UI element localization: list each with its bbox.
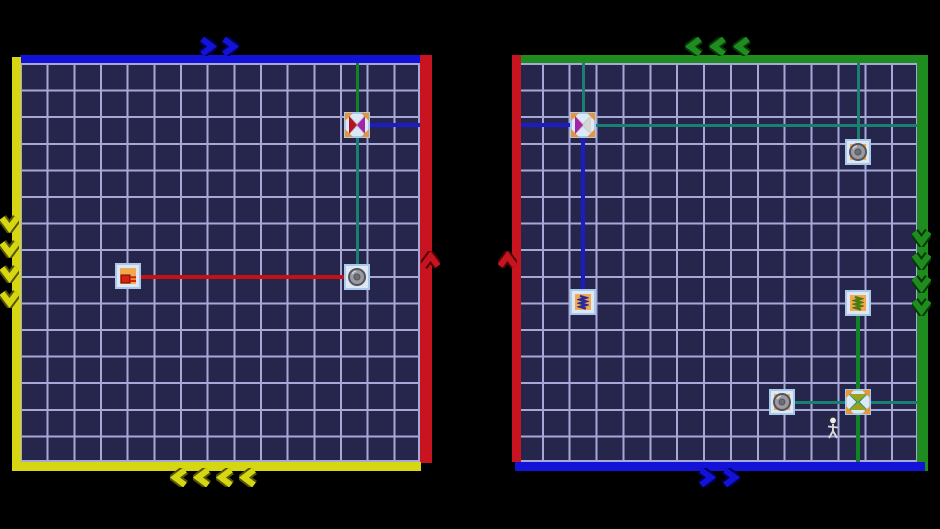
- right-round-spool-top-round-icon: [848, 142, 868, 162]
- chevron-left-icon: [193, 468, 213, 487]
- chevron-down-icon: [0, 288, 19, 308]
- right-round-spool-bottom-round-icon: [772, 392, 792, 412]
- chevron-down-icon: [0, 238, 19, 258]
- chevron-up-icon: [498, 251, 517, 271]
- left-red-plug-plug-icon: [120, 270, 137, 282]
- chevron-down-icon: [912, 227, 931, 247]
- right-green-coil-coil-icon: [852, 295, 864, 312]
- right-cross-spool-top-cross-icon: [570, 112, 596, 138]
- left-cross-spool-cross-icon: [344, 112, 370, 138]
- chevron-up-icon: [421, 251, 440, 271]
- chevron-down-icon: [912, 273, 931, 293]
- chevron-right-icon: [219, 37, 239, 56]
- wire-green: [856, 303, 860, 462]
- chevron-left-icon: [216, 468, 236, 487]
- left-round-spool-round-icon: [347, 267, 367, 287]
- chevron-left-icon: [170, 468, 190, 487]
- chevron-down-icon: [912, 250, 931, 270]
- chevron-right-icon: [696, 468, 716, 487]
- right-board-border-top-green: [512, 55, 925, 63]
- game-stage: [0, 0, 940, 529]
- chevron-left-icon: [685, 37, 705, 56]
- wire-blue: [581, 125, 585, 302]
- wire-red: [128, 275, 357, 279]
- chevron-right-icon: [197, 37, 217, 56]
- wire-teal: [356, 125, 359, 277]
- chevron-down-icon: [0, 213, 19, 233]
- chevron-left-icon: [239, 468, 259, 487]
- chevron-right-icon: [720, 468, 740, 487]
- right-blue-coil-coil-icon: [577, 294, 589, 311]
- wire-teal: [583, 124, 918, 127]
- chevron-down-icon: [912, 296, 931, 316]
- left-board-border-top-blue: [20, 55, 420, 63]
- player-character[interactable]: [825, 416, 841, 440]
- chevron-left-icon: [733, 37, 753, 56]
- chevron-down-icon: [0, 263, 19, 283]
- chevron-left-icon: [709, 37, 729, 56]
- right-cross-spool-bottom-cross-icon: [845, 389, 871, 415]
